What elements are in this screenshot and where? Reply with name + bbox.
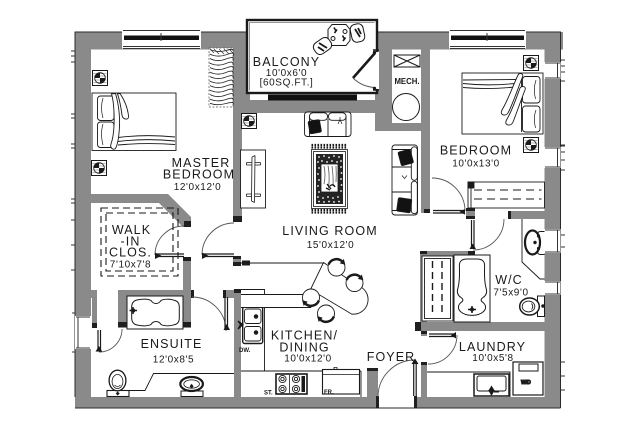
svg-text:W/D: W/D (521, 380, 531, 386)
svg-text:W/C: W/C (495, 273, 523, 287)
svg-text:BEDROOM: BEDROOM (163, 168, 235, 182)
svg-text:10'0x12'0: 10'0x12'0 (284, 354, 332, 365)
svg-text:DINING: DINING (279, 341, 329, 355)
svg-text:DW.: DW. (239, 348, 251, 354)
svg-text:ENSUITE: ENSUITE (141, 337, 203, 351)
svg-text:7'10x7'8: 7'10x7'8 (110, 260, 151, 271)
svg-text:ST.: ST. (264, 391, 273, 397)
svg-text:LAUNDRY: LAUNDRY (459, 340, 526, 354)
svg-text:BEDROOM: BEDROOM (440, 144, 512, 158)
svg-text:BALCONY: BALCONY (253, 55, 320, 69)
svg-text:FOYER: FOYER (367, 350, 416, 364)
svg-text:10'0x5'8: 10'0x5'8 (472, 353, 513, 364)
svg-text:FR.: FR. (324, 390, 334, 396)
svg-text:CLOS.: CLOS. (109, 246, 152, 260)
svg-text:12'0x8'5: 12'0x8'5 (153, 355, 194, 366)
svg-text:12'0x12'0: 12'0x12'0 (174, 182, 222, 193)
svg-text:10'0x13'0: 10'0x13'0 (452, 159, 500, 170)
svg-text:15'0x12'0: 15'0x12'0 (307, 240, 355, 251)
svg-text:7'5x9'0: 7'5x9'0 (493, 288, 528, 299)
svg-text:MECH.: MECH. (394, 77, 419, 86)
svg-text:LIVING ROOM: LIVING ROOM (282, 224, 377, 238)
svg-text:[60SQ.FT.]: [60SQ.FT.] (260, 78, 314, 89)
